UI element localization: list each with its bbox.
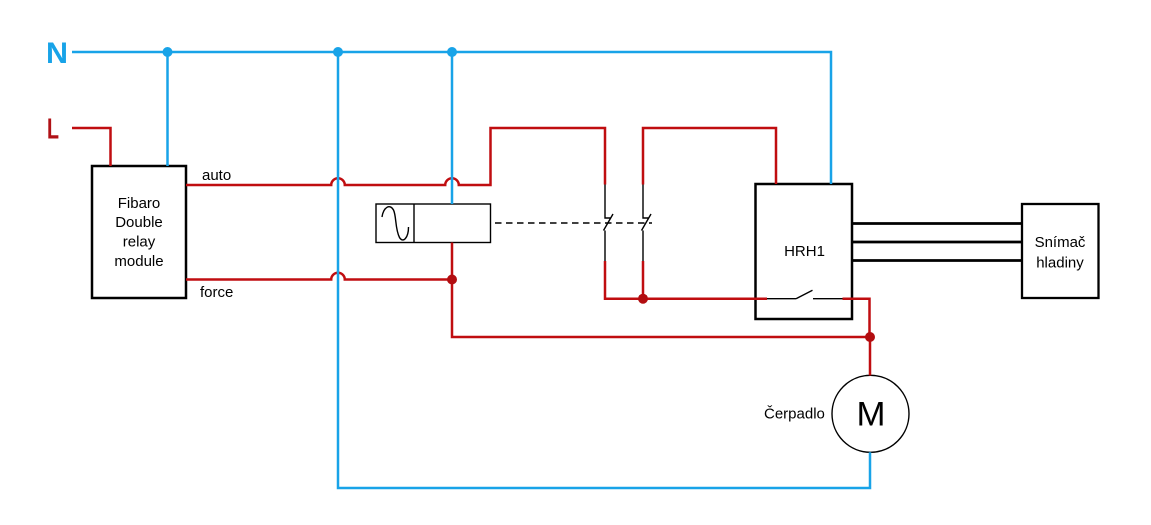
svg-text:L: L [47, 113, 59, 145]
svg-text:module: module [114, 253, 163, 270]
svg-text:Čerpadlo: Čerpadlo [764, 406, 825, 423]
svg-text:hladiny: hladiny [1036, 255, 1084, 272]
svg-text:force: force [200, 284, 233, 301]
svg-text:Double: Double [115, 214, 163, 231]
svg-text:HRH1: HRH1 [784, 243, 825, 260]
svg-text:relay: relay [123, 234, 156, 251]
svg-text:N: N [46, 37, 68, 70]
svg-text:auto: auto [202, 167, 231, 184]
svg-text:Fibaro: Fibaro [118, 195, 161, 212]
svg-text:Snímač: Snímač [1035, 234, 1086, 251]
svg-text:M: M [857, 396, 886, 434]
